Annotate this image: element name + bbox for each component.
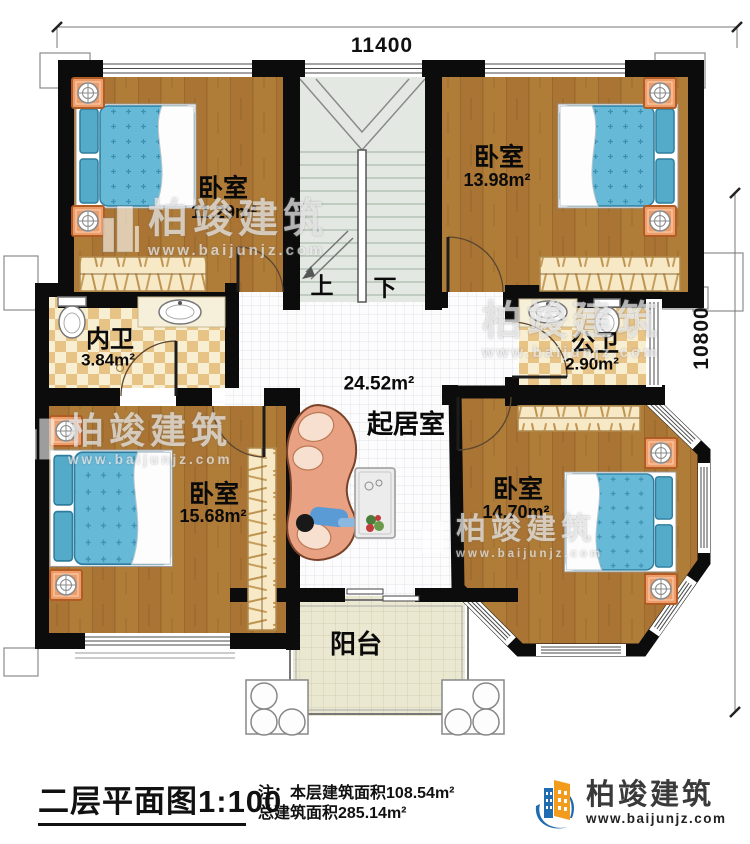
nightstand [644,206,676,236]
floor-plan-page: 11400 10800 上 下 卧室 11.29m² 卧室 13.98m² 内卫… [0,0,750,844]
brand-url: www.baijunjz.com [586,811,727,826]
coffee-table [355,468,395,538]
floor-plan-svg [0,0,750,775]
title-underline [38,823,246,826]
nightstand [50,416,82,446]
brand-logo-icon [532,774,578,832]
brand-logo: 柏竣建筑 www.baijunjz.com [532,774,727,832]
bed [76,104,196,208]
toilet [58,297,86,306]
nightstand [50,570,82,600]
brand-name: 柏竣建筑 [586,780,727,810]
toilet [594,299,620,307]
title-block: 二层平面图1:100 注：本层建筑面积108.54m² 总建筑面积285.14m… [0,770,750,844]
bed [564,472,676,572]
note-prefix: 注： [258,785,290,802]
area-note: 注：本层建筑面积108.54m² 总建筑面积285.14m² [258,784,455,824]
nightstand [645,438,677,468]
note-line2: 总建筑面积285.14m² [258,805,407,822]
bed [558,104,678,208]
nightstand [645,574,677,604]
nightstand [72,206,104,236]
note-line1: 本层建筑面积108.54m² [290,785,455,802]
page-title: 二层平面图1:100 [38,776,282,821]
nightstand [72,78,104,108]
sofa [287,405,356,560]
bed [50,450,172,566]
nightstand [644,78,676,108]
